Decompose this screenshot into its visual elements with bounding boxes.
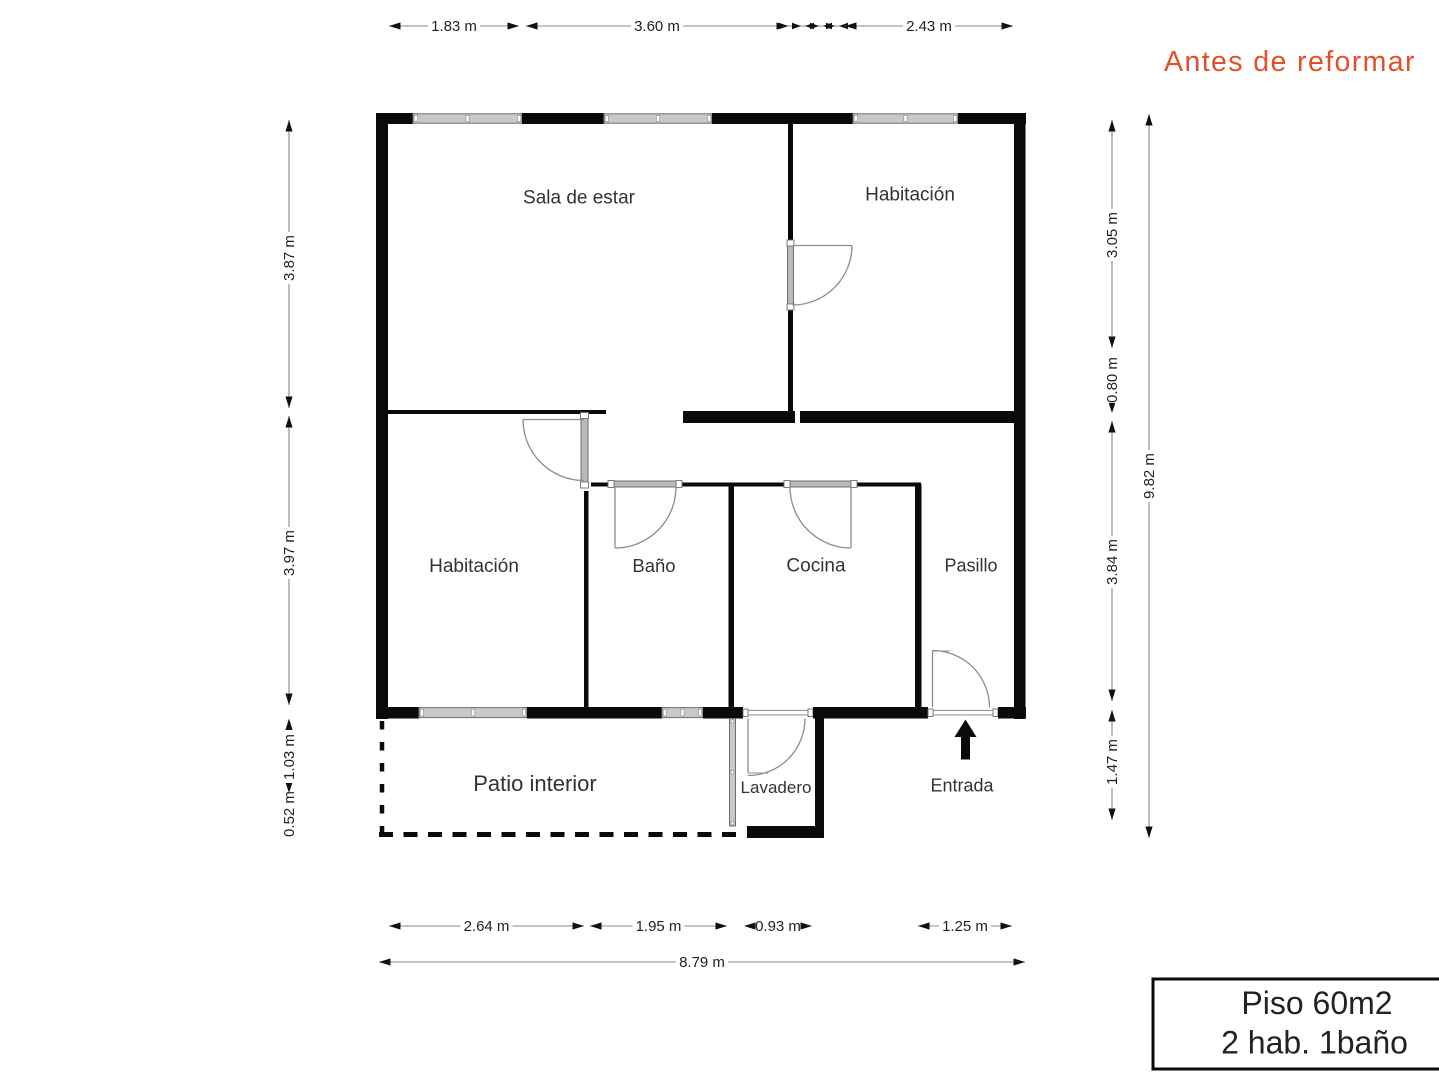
svg-text:Sala de estar: Sala de estar	[523, 188, 636, 209]
svg-text:Baño: Baño	[632, 555, 675, 576]
svg-text:2.64 m: 2.64 m	[464, 918, 510, 935]
svg-text:9.82 m: 9.82 m	[1141, 453, 1158, 499]
svg-text:0.93 m: 0.93 m	[755, 918, 801, 935]
svg-text:Cocina: Cocina	[786, 556, 846, 577]
svg-text:1.95 m: 1.95 m	[636, 918, 682, 935]
svg-text:Patio interior: Patio interior	[473, 771, 597, 796]
svg-text:3.87 m: 3.87 m	[281, 235, 298, 281]
svg-text:0.80 m: 0.80 m	[1104, 357, 1121, 403]
svg-text:1.25 m: 1.25 m	[942, 918, 988, 935]
svg-text:1.47 m: 1.47 m	[1104, 739, 1121, 785]
svg-text:Piso 60m2: Piso 60m2	[1241, 985, 1392, 1021]
svg-text:Pasillo: Pasillo	[944, 556, 997, 576]
svg-text:Antes de reformar: Antes de reformar	[1164, 46, 1416, 78]
svg-text:Habitación: Habitación	[429, 556, 519, 577]
svg-text:3.97 m: 3.97 m	[281, 530, 298, 576]
svg-text:Lavadero: Lavadero	[741, 778, 812, 797]
svg-text:2.43 m: 2.43 m	[906, 18, 952, 35]
svg-text:3.84 m: 3.84 m	[1104, 539, 1121, 585]
svg-text:1.83 m: 1.83 m	[431, 18, 477, 35]
svg-text:1.03 m: 1.03 m	[281, 734, 298, 780]
svg-text:3.05 m: 3.05 m	[1104, 212, 1121, 258]
svg-text:Entrada: Entrada	[930, 776, 994, 796]
svg-text:8.79 m: 8.79 m	[679, 954, 725, 971]
svg-text:3.60 m: 3.60 m	[634, 18, 680, 35]
svg-text:0.52 m: 0.52 m	[281, 791, 298, 837]
svg-text:Habitación: Habitación	[865, 185, 955, 206]
svg-text:2 hab. 1baño: 2 hab. 1baño	[1221, 1025, 1408, 1061]
